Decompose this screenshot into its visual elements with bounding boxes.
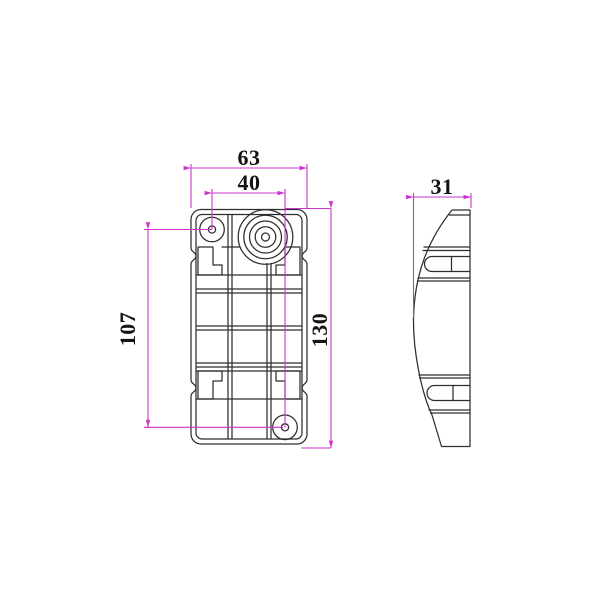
dimension-31: 31 [414,174,472,318]
vertical-ribs [228,215,271,440]
front-inner-outline [196,215,302,440]
side-hook-tab-lower [427,386,470,401]
dimension-107: 107 [115,230,283,428]
boss-center-hole [262,233,270,241]
dimension-130-label: 130 [307,313,332,348]
front-outer-outline [191,210,307,445]
boss-ring-4 [255,227,276,248]
front-view [191,210,307,445]
dimension-40: 40 [212,170,285,427]
technical-drawing-page: 63 40 107 130 31 [0,0,600,600]
boss-ring-2 [244,215,287,258]
boss-ring-3 [250,221,282,253]
horizontal-ribs [196,247,302,399]
dimension-63-label: 63 [238,145,261,170]
hook-slot-upper-left [198,247,222,275]
side-upper-band [418,247,471,281]
side-outline [413,210,470,447]
dimension-107-label: 107 [115,312,140,347]
side-lower-band [419,375,470,413]
dimension-31-label: 31 [431,174,454,199]
dimensions: 63 40 107 130 31 [115,145,471,448]
drawing-canvas: 63 40 107 130 31 [0,0,600,600]
hook-slot-lower-left [198,371,222,399]
side-hook-tab-upper [425,257,471,272]
dimension-40-label: 40 [238,170,261,195]
hook-slot-lower-right [276,371,300,399]
side-view [413,210,470,447]
